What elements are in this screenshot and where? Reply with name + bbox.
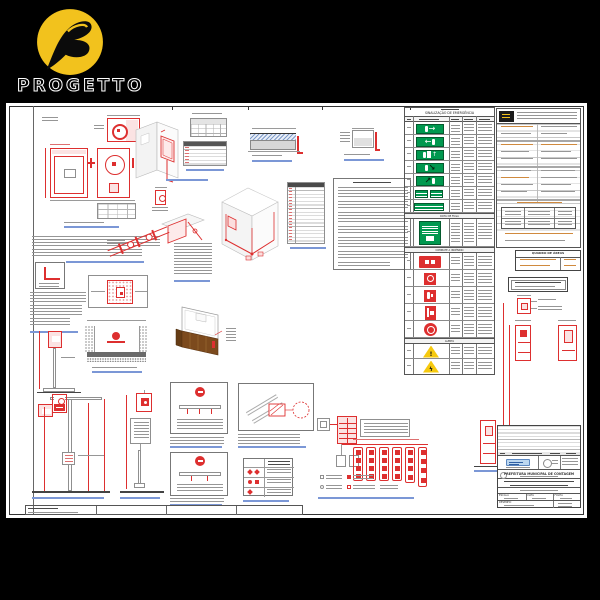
device xyxy=(382,466,387,471)
device-dial xyxy=(159,195,166,202)
drawing-sheet: SINALIZAÇÃO DE EMERGÊNCIA → ← ↑ xyxy=(6,103,587,518)
base-line xyxy=(248,151,300,152)
revision-rows xyxy=(498,426,580,452)
warning-triangle-icon: ! xyxy=(423,346,439,358)
hydrant-sign-icon xyxy=(425,306,436,320)
sign-row-exit-left: ← xyxy=(405,135,494,148)
sign-row-hydrant xyxy=(405,304,494,321)
button-box xyxy=(517,298,531,314)
boxed-note xyxy=(508,277,568,292)
pipe-tee xyxy=(88,162,95,164)
fill xyxy=(52,150,86,154)
sign-row-fire-hose xyxy=(405,253,494,270)
itemized-notes xyxy=(174,243,212,276)
wall-device-elevation-1 xyxy=(515,325,531,361)
text-smudge xyxy=(78,455,104,458)
row-line xyxy=(244,477,294,478)
text-smudge xyxy=(177,419,223,430)
bracket-bar xyxy=(179,472,221,476)
pipe xyxy=(375,132,377,150)
row-line xyxy=(244,467,294,468)
screenshot-canvas: PROGETTO xyxy=(0,0,600,600)
bracket-bar xyxy=(179,405,221,409)
caption-smudge xyxy=(252,155,282,158)
wall-section-1 xyxy=(248,128,302,164)
device xyxy=(408,458,413,463)
ground-line xyxy=(120,491,164,493)
project-row xyxy=(498,479,580,488)
anchor xyxy=(211,409,212,414)
label-smudge xyxy=(515,320,531,323)
fields-row-1: ESCALA DATA FOLHA xyxy=(498,494,580,501)
stamp-strip xyxy=(25,505,303,515)
exit-left-sign-icon: ← xyxy=(416,137,444,147)
panel-divider xyxy=(347,418,348,443)
text-smudge xyxy=(170,437,224,444)
device xyxy=(356,466,361,471)
valve-box xyxy=(109,183,119,193)
symbol-glyph xyxy=(248,480,252,484)
device-stack xyxy=(418,447,427,487)
dim-line xyxy=(126,395,127,489)
exit-right-sign-icon: → xyxy=(416,124,444,134)
fold-tick xyxy=(322,106,323,110)
caption-link xyxy=(92,371,142,373)
text-smudge xyxy=(50,144,70,147)
legend-text xyxy=(326,475,342,480)
anchor xyxy=(187,409,188,414)
sign-row-exit-door: ↑ xyxy=(405,148,494,161)
legend-text xyxy=(353,475,373,480)
caption-smudge xyxy=(64,222,104,225)
coil-center xyxy=(117,129,120,132)
exit-diagonal-down-sign-icon: ↘ xyxy=(416,163,444,173)
counter-isometric xyxy=(172,305,224,363)
sign-row-exit-diag-up: ↗ xyxy=(405,174,494,187)
sign-row-alarm xyxy=(405,270,494,287)
text-smudge xyxy=(61,357,75,360)
notes-lines xyxy=(338,251,408,259)
caption-smudge xyxy=(192,113,222,116)
cabinet-elevation-a xyxy=(50,148,88,198)
anchor xyxy=(199,409,200,414)
beam-drawing xyxy=(241,386,313,428)
column xyxy=(116,287,125,298)
caption-link xyxy=(318,497,414,499)
hose-reel-sign-icon xyxy=(424,323,437,336)
legend-glyph xyxy=(320,485,324,489)
notes-lines xyxy=(338,201,408,209)
text-smudge xyxy=(238,434,300,444)
dim-line xyxy=(45,148,46,198)
pit-wall xyxy=(94,326,95,352)
bus-line xyxy=(341,444,428,445)
box-detail xyxy=(134,422,149,440)
dim-line xyxy=(104,399,105,491)
dim-line xyxy=(517,295,531,296)
pictogram xyxy=(141,398,149,406)
fixation-detail-1 xyxy=(170,382,228,434)
sign-top xyxy=(54,396,65,404)
alarm-riser-schematic xyxy=(314,413,428,503)
column-line xyxy=(295,187,296,244)
caption-smudge xyxy=(344,154,370,157)
text-smudge xyxy=(177,484,223,493)
device xyxy=(356,458,361,463)
device xyxy=(395,466,400,471)
device-stack xyxy=(379,447,389,481)
dim-line xyxy=(155,187,167,188)
symbol-legend-table xyxy=(243,458,293,496)
circuit-labels xyxy=(353,439,419,441)
alarm-sign xyxy=(52,394,67,413)
device xyxy=(356,450,361,455)
exit-door-sign-icon: ↑ xyxy=(416,150,444,160)
section-label: COMBATE A INCÊNDIO xyxy=(405,250,494,253)
device xyxy=(408,466,413,471)
device xyxy=(421,459,426,464)
detail-bubble xyxy=(195,456,205,466)
fold-tick xyxy=(248,106,249,110)
sign-row-extinguisher xyxy=(405,287,494,304)
authority-name: PREFEITURA MUNICIPAL DE CONTAGEM xyxy=(498,472,580,476)
device xyxy=(369,458,374,463)
totem-sign xyxy=(48,331,62,348)
sign-row-route-map xyxy=(405,219,494,247)
device xyxy=(395,474,400,479)
wall-device-elevation-3 xyxy=(480,420,496,464)
leader-labels xyxy=(226,328,236,342)
fields-row-2: DESENHO xyxy=(498,501,580,508)
caption-link xyxy=(170,446,222,448)
cell-smudge xyxy=(267,489,291,495)
seal-logo xyxy=(543,459,552,468)
dim-line xyxy=(352,128,374,129)
anchor xyxy=(207,476,208,481)
device xyxy=(564,330,573,343)
pipe-dot xyxy=(120,292,123,295)
legend-glyph xyxy=(320,475,324,479)
label-smudge xyxy=(558,320,576,323)
sign-row-hose-reel xyxy=(405,321,494,338)
dim-line xyxy=(44,407,45,491)
caption-link xyxy=(243,500,289,502)
notes-paragraph xyxy=(30,305,82,316)
device xyxy=(421,468,426,473)
striped-list xyxy=(183,141,227,166)
device xyxy=(369,466,374,471)
notes-lines xyxy=(338,187,408,198)
exit-wide-sign-icon xyxy=(414,203,444,211)
signage-table: SINALIZAÇÃO DE EMERGÊNCIA → ← ↑ xyxy=(404,107,495,375)
gravel-layer xyxy=(87,358,146,362)
wall-device-elevation-2 xyxy=(558,325,577,361)
leader xyxy=(91,291,105,292)
legend-text xyxy=(380,485,398,490)
beam-support-detail xyxy=(238,383,314,431)
detail-bubble xyxy=(195,387,205,397)
device xyxy=(485,426,493,436)
valve-flange xyxy=(107,341,125,343)
soil-hatch xyxy=(85,326,94,352)
signage-plate xyxy=(38,404,53,417)
cell-smudge xyxy=(267,479,291,485)
battery-box xyxy=(336,455,346,467)
inner-box xyxy=(320,421,327,428)
legend-text xyxy=(326,485,342,490)
base-line xyxy=(50,200,135,201)
notes-lines xyxy=(338,226,408,234)
cabinet-elevation-b xyxy=(97,148,130,198)
column-line xyxy=(537,124,538,202)
call-point-box xyxy=(62,452,75,465)
text-smudge xyxy=(94,125,104,131)
caption-smudge xyxy=(92,367,137,370)
panel-line xyxy=(339,428,357,429)
sign-row-exit-double xyxy=(405,187,494,200)
device-box xyxy=(155,190,166,205)
panel-pole-elevation xyxy=(118,388,166,500)
text-smudge xyxy=(39,283,59,287)
title-block: PREFEITURA MUNICIPAL DE CONTAGEM ESCALA … xyxy=(497,425,581,508)
text-smudge xyxy=(42,117,58,123)
caption-link xyxy=(290,247,326,249)
post xyxy=(53,348,56,388)
signage-table-title: SINALIZAÇÃO DE EMERGÊNCIA xyxy=(405,112,494,116)
panel-line xyxy=(339,423,357,424)
connector xyxy=(330,424,337,425)
table-header xyxy=(268,461,290,465)
device xyxy=(408,450,413,455)
mini-table xyxy=(97,203,136,219)
caption-link xyxy=(344,159,384,161)
spec-logo-icon xyxy=(499,111,514,122)
hose-coil-icon xyxy=(112,124,128,140)
top-sign xyxy=(136,393,152,412)
sign-plate xyxy=(64,169,76,178)
hydrant-plan-detail xyxy=(88,275,148,308)
symbol-glyph xyxy=(247,489,253,495)
alarm-pole-elevation xyxy=(32,388,116,500)
alarm-button-detail xyxy=(517,295,567,319)
sign-row-warning: ! xyxy=(405,344,494,359)
column-line xyxy=(264,459,265,497)
spec-header-text xyxy=(517,112,577,121)
device xyxy=(382,474,387,479)
soil-hatch xyxy=(139,326,148,352)
device xyxy=(395,450,400,455)
schematic-notes-box xyxy=(360,419,410,437)
row-labels xyxy=(185,147,189,165)
dim-line xyxy=(87,320,146,321)
device xyxy=(408,475,413,480)
schedule-table xyxy=(190,118,227,137)
base-slab xyxy=(87,352,146,357)
exit-text-sign-icon xyxy=(415,190,428,198)
pole xyxy=(68,399,72,491)
symbol-glyph xyxy=(247,469,253,475)
caption-link xyxy=(166,179,208,181)
extinguisher-sign-icon xyxy=(424,290,436,302)
cell-smudge xyxy=(267,469,291,475)
device-stack xyxy=(392,447,402,481)
valve xyxy=(112,332,120,340)
table-header xyxy=(191,119,226,124)
device xyxy=(382,450,387,455)
notes-lines xyxy=(364,423,408,435)
section-label: ROTA DE FUGA xyxy=(405,216,494,219)
drop-line xyxy=(341,444,342,455)
section-label: ALERTA xyxy=(405,341,494,344)
dim-line xyxy=(88,403,89,491)
caption-link xyxy=(238,446,306,448)
fixation-detail-2 xyxy=(170,452,228,496)
dim-line xyxy=(39,331,40,389)
fold-tick xyxy=(172,106,173,110)
list-header xyxy=(288,183,324,187)
ground-line xyxy=(32,491,110,493)
slab xyxy=(250,140,296,150)
exit-diagonal-up-sign-icon: ↗ xyxy=(416,176,444,186)
areas-table-title: QUADRO DE ÁREAS xyxy=(516,252,580,255)
equipment-box xyxy=(130,418,151,444)
totem-elevation xyxy=(37,325,81,393)
device-stack xyxy=(405,447,415,483)
sign-row-exit-wide xyxy=(405,200,494,213)
caption-link xyxy=(252,160,292,162)
sign-row-electric-risk: ϟ xyxy=(405,359,494,374)
sign-row-exit-right: → xyxy=(405,122,494,135)
general-notes-block xyxy=(333,178,411,270)
agency-logo xyxy=(506,459,530,466)
notes-lines xyxy=(338,262,390,268)
caption-link xyxy=(64,226,119,228)
sign-row-exit-diag-down: ↘ xyxy=(405,161,494,174)
spec-table xyxy=(496,108,581,248)
coil-hub xyxy=(112,162,116,166)
dim-line xyxy=(107,115,140,116)
section-box xyxy=(352,130,374,148)
text-smudge xyxy=(170,498,224,503)
button xyxy=(521,303,528,310)
notes-paragraph xyxy=(30,292,86,303)
fill xyxy=(354,138,372,146)
device xyxy=(395,458,400,463)
pipe-elbow xyxy=(297,152,303,154)
legend-text xyxy=(353,485,375,490)
dim-line xyxy=(252,128,296,129)
progetto-logo-icon xyxy=(36,8,104,76)
notes-title xyxy=(353,182,391,184)
wall-section-2 xyxy=(340,128,384,164)
device xyxy=(421,450,426,455)
box-detail xyxy=(65,455,73,463)
device xyxy=(382,458,387,463)
device xyxy=(421,478,426,483)
caption-link xyxy=(174,280,210,282)
authority-row: PREFEITURA MUNICIPAL DE CONTAGEM xyxy=(498,470,580,479)
row-labels xyxy=(289,188,292,242)
symbol-glyph xyxy=(254,469,260,475)
pipe-elbow-detail xyxy=(35,262,65,289)
ladder-list xyxy=(287,182,325,244)
device xyxy=(520,330,527,337)
pipe-assembly-iso xyxy=(107,240,175,270)
alarm-sign-icon xyxy=(424,273,436,285)
plinth xyxy=(134,483,145,488)
leader xyxy=(135,291,147,292)
route-map-sign-icon xyxy=(419,221,441,245)
brand-wordmark: PROGETTO xyxy=(17,76,145,96)
notes-lines xyxy=(338,212,408,223)
notes-lines xyxy=(338,237,408,248)
pipe-elbow xyxy=(375,149,380,151)
power-box xyxy=(317,418,330,431)
electric-risk-triangle-icon: ϟ xyxy=(423,361,439,373)
cabinet-isometric xyxy=(133,118,181,186)
pit-wall xyxy=(139,326,140,352)
pipe xyxy=(44,278,60,280)
text-smudge xyxy=(340,132,350,144)
legend-glyph xyxy=(347,475,351,479)
sign-bottom xyxy=(54,404,65,411)
anchor xyxy=(191,476,192,481)
areas-table: QUADRO DE ÁREAS xyxy=(515,250,581,271)
sub-table xyxy=(501,207,576,229)
valve-pit-section xyxy=(85,318,148,365)
row-line xyxy=(244,487,294,488)
hatched-enclosure xyxy=(107,280,133,304)
exit-text-sign-icon xyxy=(430,190,443,198)
sign-face xyxy=(52,336,60,342)
device xyxy=(369,450,374,455)
logos-row xyxy=(498,456,580,470)
room-isometric xyxy=(218,168,282,270)
caption-link xyxy=(32,497,104,499)
post xyxy=(138,450,141,486)
list-header xyxy=(184,142,226,146)
sub-header xyxy=(517,202,562,205)
symbol-glyph xyxy=(255,480,259,484)
legend-glyph xyxy=(347,485,351,489)
panel-line xyxy=(339,433,357,434)
fire-hose-sign-icon xyxy=(419,256,441,268)
caption-link xyxy=(120,497,160,499)
top-banner: PROGETTO xyxy=(0,0,600,103)
